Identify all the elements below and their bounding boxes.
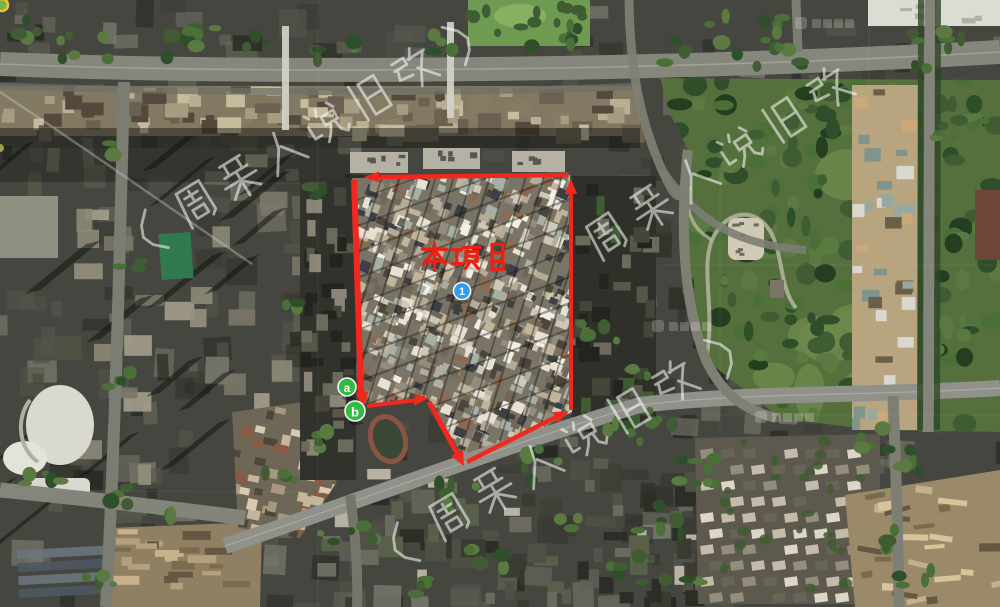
satellite-map-screenshot: 1ab bbox=[0, 0, 1000, 607]
footbridge bbox=[282, 26, 289, 130]
project-boundary-segment bbox=[380, 175, 568, 177]
footbridge bbox=[447, 22, 454, 118]
svg-text:1: 1 bbox=[459, 286, 465, 298]
svg-text:a: a bbox=[344, 381, 351, 395]
poi-marker-partial bbox=[0, 0, 8, 11]
map-canvas: 1ab bbox=[0, 0, 1000, 607]
svg-text:b: b bbox=[351, 405, 359, 420]
